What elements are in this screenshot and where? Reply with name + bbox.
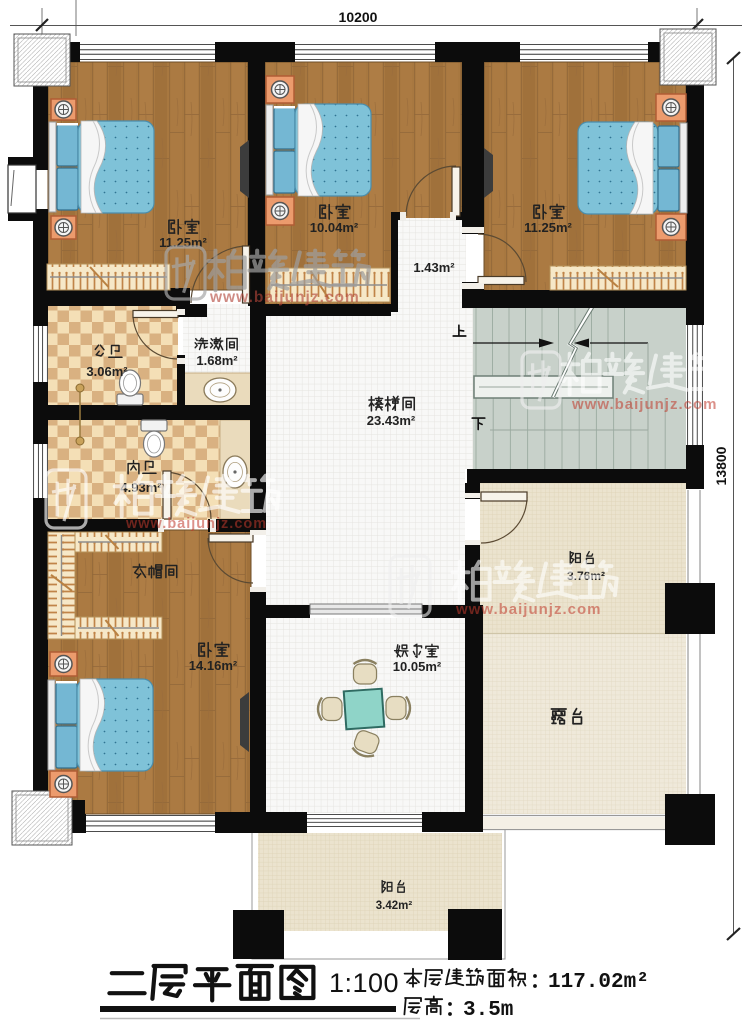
svg-text:11.25m²: 11.25m² xyxy=(524,220,572,235)
svg-text:23.43m²: 23.43m² xyxy=(367,413,416,428)
svg-text:1.68m²: 1.68m² xyxy=(196,353,238,368)
svg-text:www.baijunjz.com: www.baijunjz.com xyxy=(125,516,267,532)
svg-text:3.06m²: 3.06m² xyxy=(86,364,128,379)
svg-text:1:100: 1:100 xyxy=(329,968,399,998)
svg-text:：: ： xyxy=(445,998,465,1020)
svg-text:www.baijunjz.com: www.baijunjz.com xyxy=(209,289,360,306)
svg-text:：: ： xyxy=(530,970,550,992)
svg-text:www.baijunjz.com: www.baijunjz.com xyxy=(455,601,601,618)
svg-text:14.16m²: 14.16m² xyxy=(189,658,238,673)
svg-text:1.43m²: 1.43m² xyxy=(413,260,455,275)
svg-text:10.04m²: 10.04m² xyxy=(310,220,359,235)
svg-text:10200: 10200 xyxy=(339,9,378,25)
svg-text:3.5m: 3.5m xyxy=(463,999,513,1022)
svg-text:10.05m²: 10.05m² xyxy=(393,659,442,674)
svg-text:13800: 13800 xyxy=(713,446,729,485)
svg-text:www.baijunjz.com: www.baijunjz.com xyxy=(571,396,717,413)
svg-text:117.02m²: 117.02m² xyxy=(548,971,649,994)
svg-text:3.42m²: 3.42m² xyxy=(376,900,413,912)
